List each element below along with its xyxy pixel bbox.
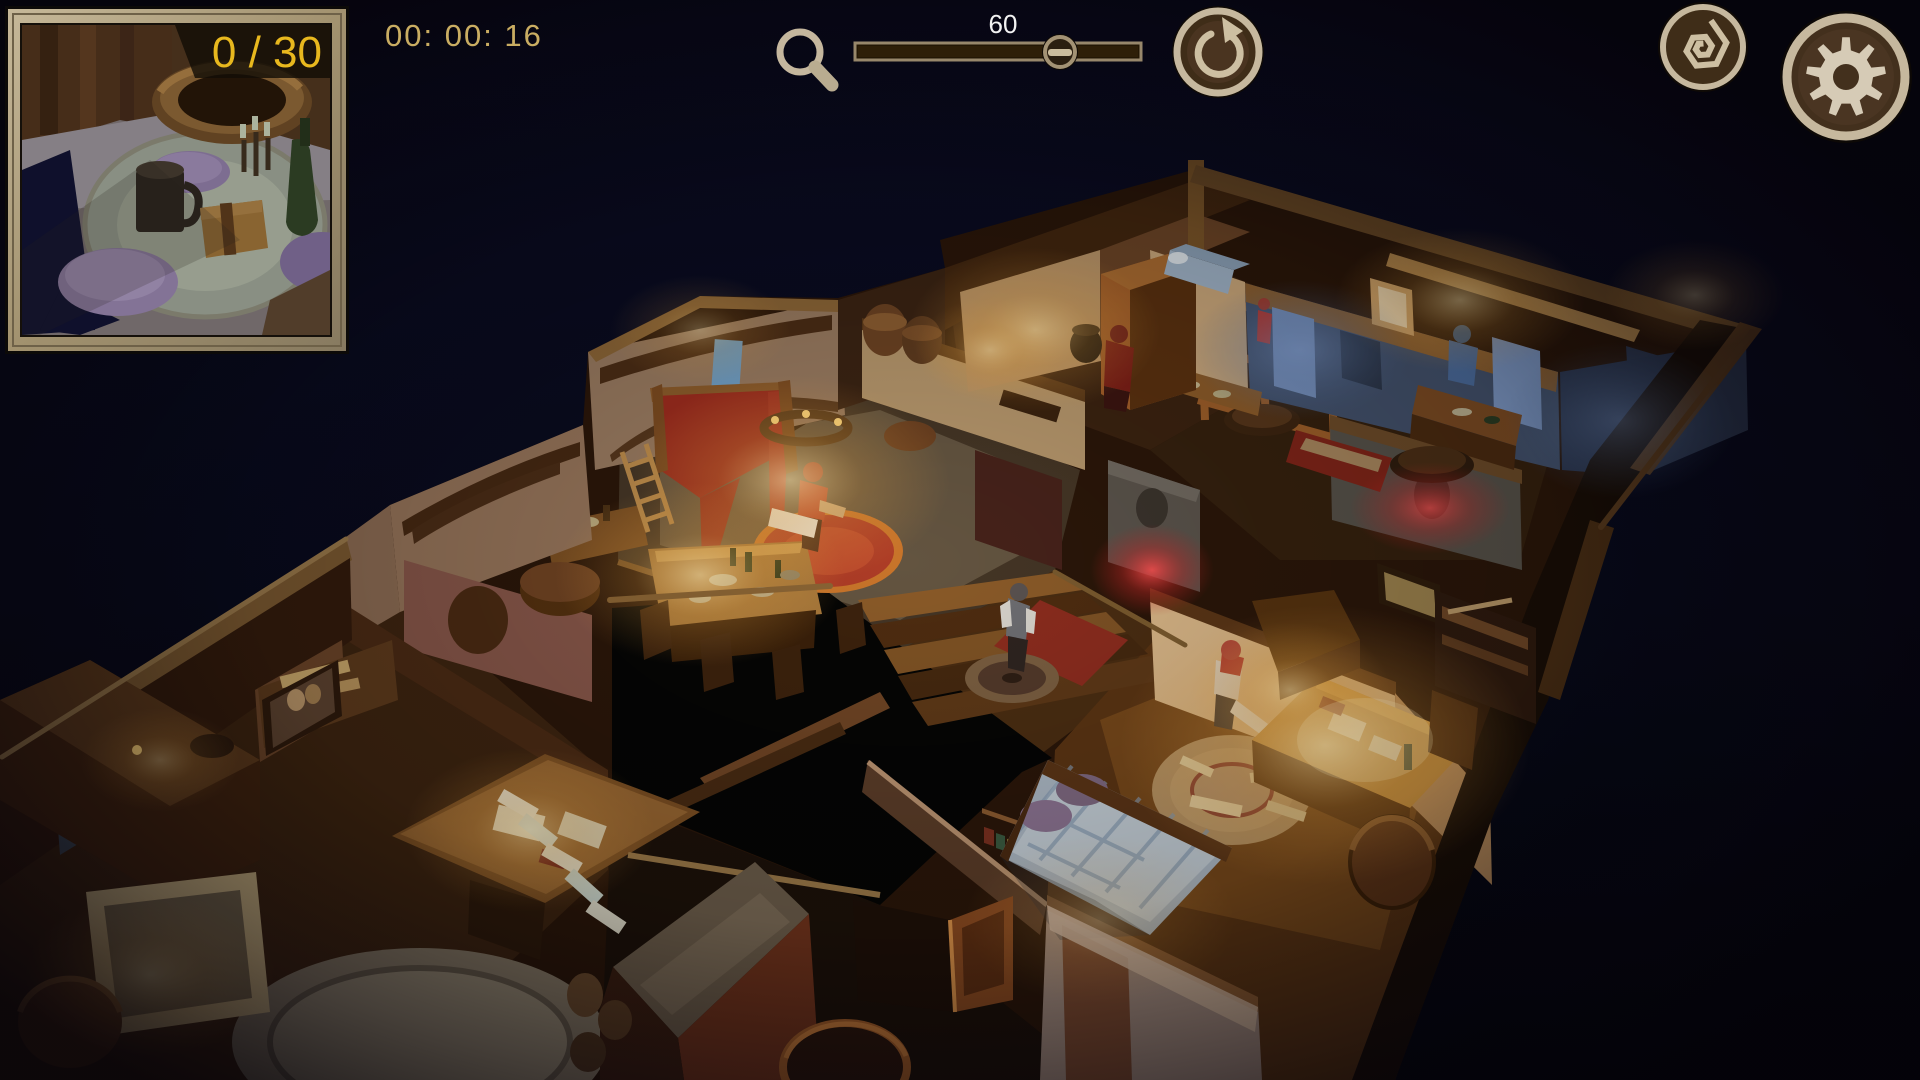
svg-text:60: 60: [989, 9, 1018, 39]
svg-text:0 / 30: 0 / 30: [212, 28, 322, 77]
svg-text:00: 00: 16: 00: 00: 16: [385, 18, 543, 53]
